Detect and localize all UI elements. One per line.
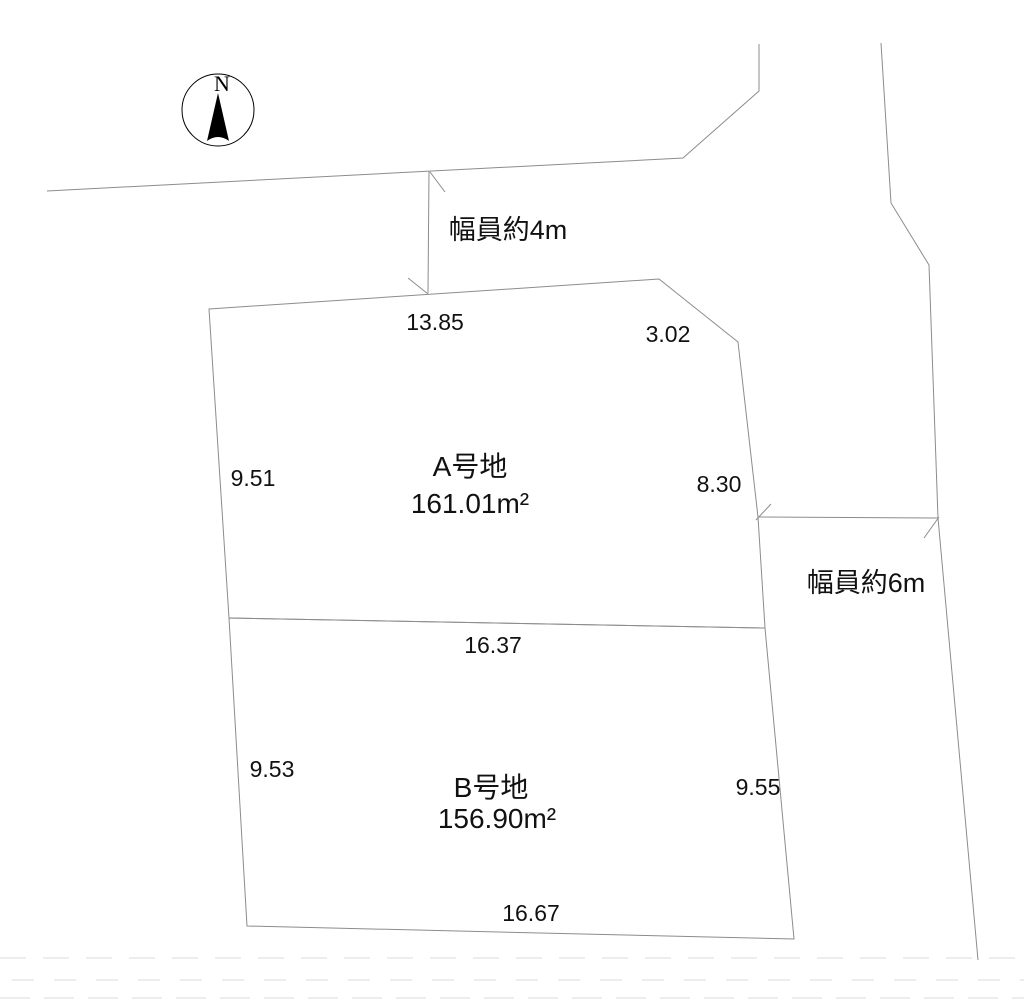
compass-north-label: N (214, 71, 230, 96)
dimension-line-4m (428, 171, 429, 293)
plot-b-dim-top: 16.37 (464, 632, 522, 658)
compass-needle-icon (207, 93, 229, 141)
bottom-texture-dashes (0, 958, 1024, 998)
dimension-tick (924, 517, 939, 538)
plot-b-dim-bottom: 16.67 (502, 900, 560, 926)
east-road-width-label: 幅員約6m (807, 568, 926, 598)
plot-a-dim-top: 13.85 (406, 309, 464, 335)
plot-map-svg: N 幅員約4m 幅員約6m (0, 0, 1024, 1006)
north-road-dimension (408, 171, 445, 294)
east-road-dimension (756, 504, 939, 538)
dimension-line-6m (758, 517, 938, 518)
dimension-tick (408, 278, 428, 294)
plot-b-name: B号地 (454, 772, 529, 803)
plot-a-dim-right: 8.30 (697, 471, 742, 497)
plot-a-area: 161.01m² (411, 488, 529, 519)
plot-a-dim-left: 9.51 (231, 465, 276, 491)
plot-a-name: A号地 (433, 451, 508, 482)
north-road-boundary-line (47, 44, 759, 191)
dimension-tick (756, 504, 771, 520)
plot-b-area: 156.90m² (438, 803, 556, 834)
plot-b-dim-right: 9.55 (736, 774, 781, 800)
compass: N (182, 71, 254, 146)
east-road-boundary-line (881, 43, 978, 960)
plot-a-dim-corner: 3.02 (646, 321, 691, 347)
north-road-width-label: 幅員約4m (449, 215, 568, 245)
dimension-tick (430, 172, 445, 192)
land-plot-diagram: N 幅員約4m 幅員約6m (0, 0, 1024, 1006)
plot-b-dim-left: 9.53 (250, 756, 295, 782)
